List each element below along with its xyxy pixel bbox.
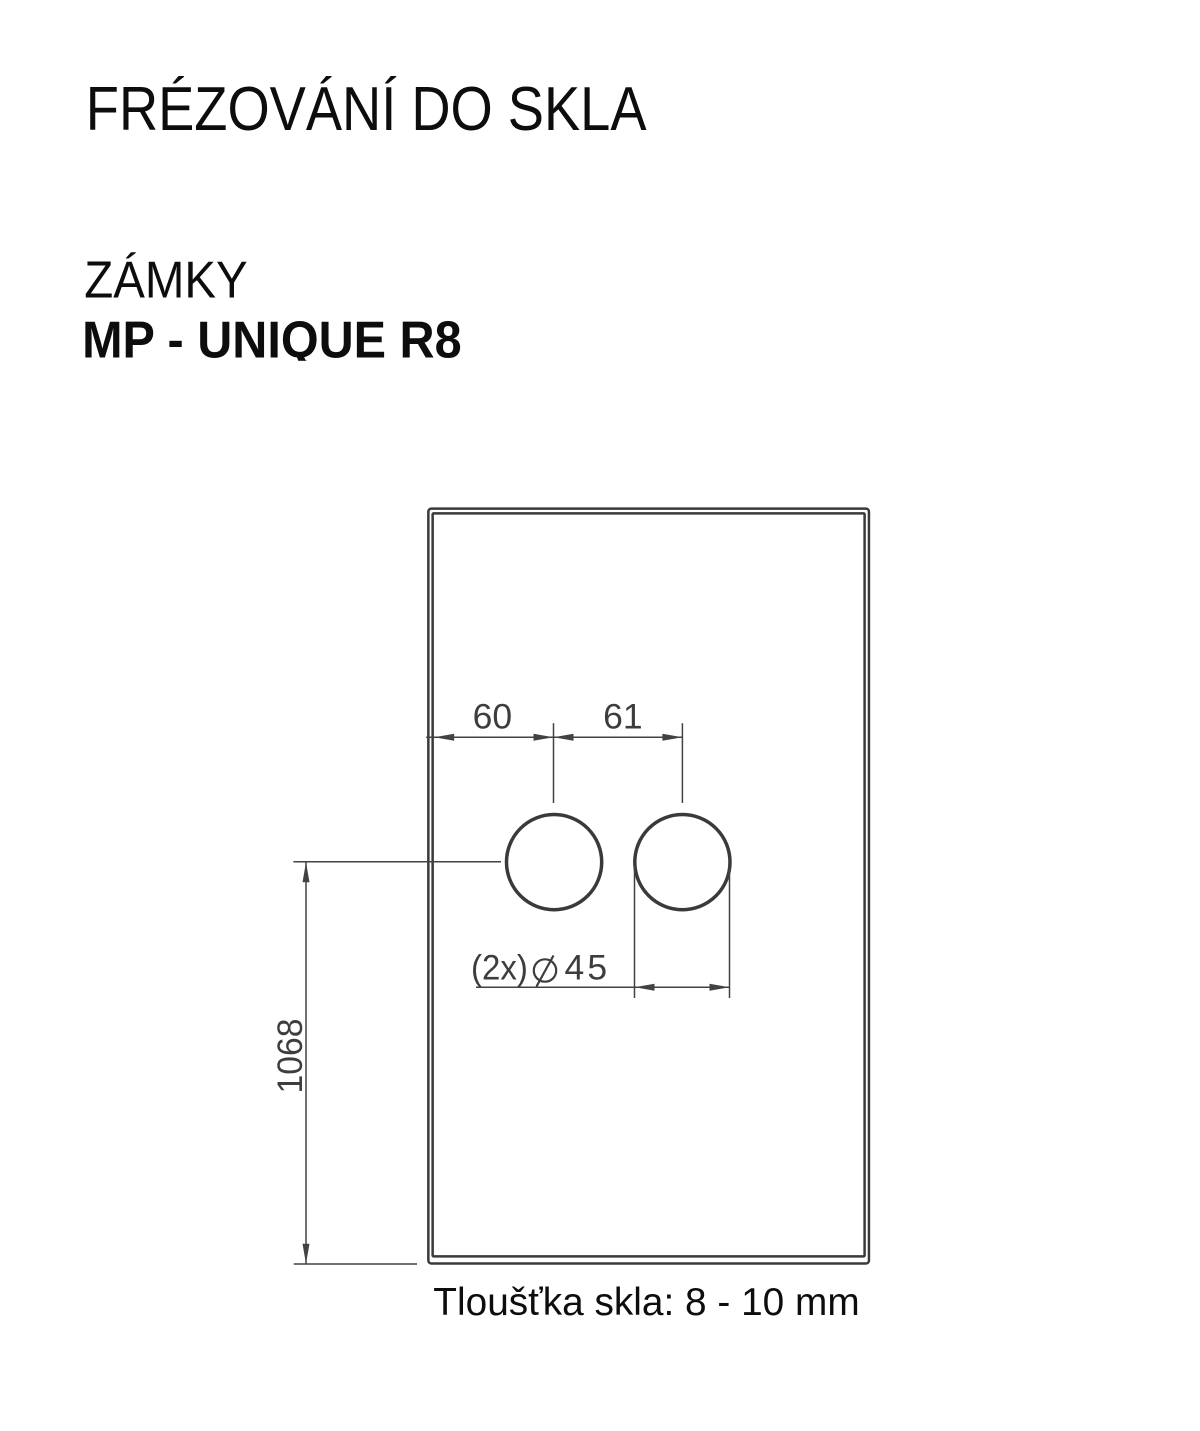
svg-text:Tloušťka skla: 8 - 10 mm: Tloušťka skla: 8 - 10 mm: [433, 1281, 859, 1324]
svg-text:60: 60: [473, 696, 513, 736]
svg-text:61: 61: [603, 696, 643, 736]
svg-text:(2x): (2x): [471, 948, 528, 987]
svg-text:MP - UNIQUE R8: MP - UNIQUE R8: [82, 310, 461, 369]
svg-text:1068: 1068: [270, 1019, 310, 1094]
svg-text:FRÉZOVÁNÍ DO SKLA: FRÉZOVÁNÍ DO SKLA: [86, 75, 647, 144]
svg-text:ZÁMKY: ZÁMKY: [84, 250, 247, 309]
svg-text:45: 45: [565, 947, 611, 987]
